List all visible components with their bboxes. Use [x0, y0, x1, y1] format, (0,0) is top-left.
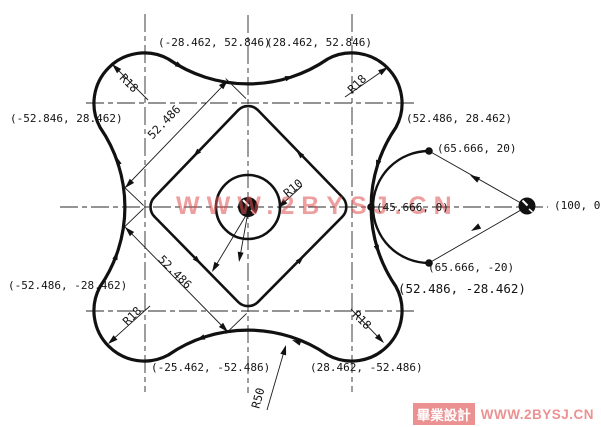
cad-drawing-canvas: WWW.2BYSJ.CN (-28.462, 52.846) (28.462, …: [0, 0, 601, 427]
point-65-20-marker: [425, 147, 433, 155]
coord-label-top-left: (-28.462, 52.846): [158, 36, 271, 49]
coord-label-bottom-left: (-25.462, -52.486): [151, 361, 270, 374]
coord-label-right-upper: (52.486, 28.462): [406, 112, 512, 125]
coord-label-aux-right: (100, 0): [554, 199, 601, 212]
coord-label-aux-bottom: (65.666, -20): [428, 261, 514, 274]
leader-r50: [267, 347, 286, 411]
footer-site-url: WWW.2BYSJ.CN: [481, 407, 594, 422]
coord-label-right-lower: (52.486, -28.462): [398, 281, 526, 296]
coord-label-left-lower: (-52.486, -28.462): [8, 279, 127, 292]
coord-label-aux-left: (45.666, 0): [376, 201, 449, 214]
footer-badge: 畢業設計: [413, 403, 475, 425]
footer-watermark: 畢業設計 WWW.2BYSJ.CN: [413, 403, 594, 425]
coord-label-bottom-right: (28.462, -52.486): [310, 361, 423, 374]
dim-line-upper-edge: [125, 81, 228, 188]
coord-label-top-right: (28.462, 52.846): [266, 36, 372, 49]
coord-label-left-upper: (-52.846, 28.462): [10, 112, 123, 125]
extension-line: [226, 79, 246, 99]
coord-label-aux-top: (65.666, 20): [437, 142, 516, 155]
